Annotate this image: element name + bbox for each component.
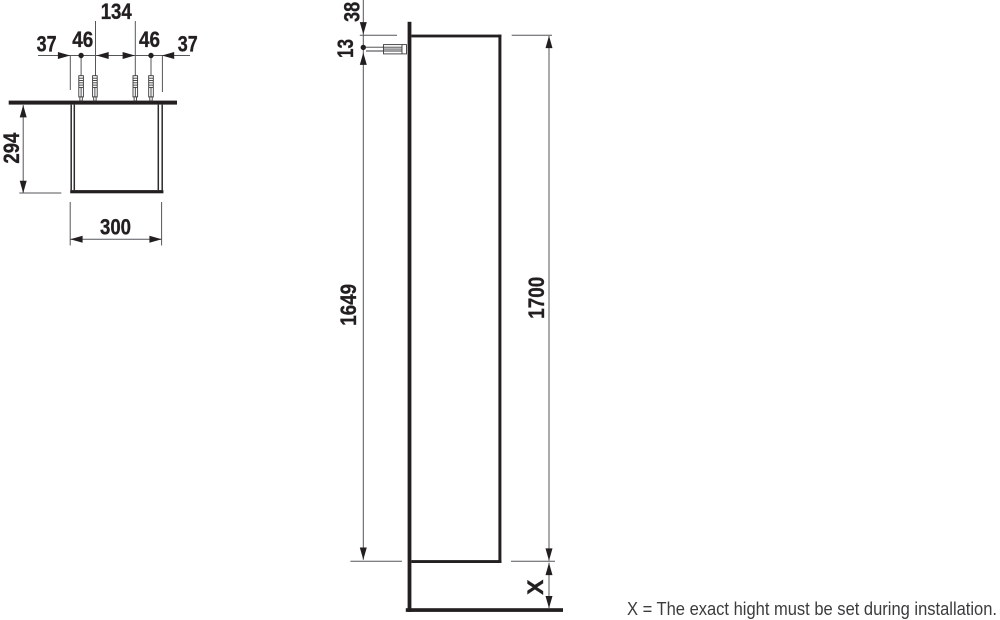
svg-text:300: 300 xyxy=(100,215,131,240)
svg-text:38: 38 xyxy=(340,2,365,22)
svg-text:1700: 1700 xyxy=(524,277,549,319)
svg-text:X = The exact hight must be se: X = The exact hight must be set during i… xyxy=(627,598,997,619)
svg-text:294: 294 xyxy=(0,132,24,163)
svg-text:37: 37 xyxy=(37,32,57,57)
svg-text:13: 13 xyxy=(333,39,358,58)
svg-text:37: 37 xyxy=(178,32,198,57)
svg-text:X: X xyxy=(523,580,548,595)
svg-text:134: 134 xyxy=(101,0,132,24)
svg-text:46: 46 xyxy=(72,27,93,52)
svg-text:1649: 1649 xyxy=(336,284,361,326)
svg-text:46: 46 xyxy=(139,27,160,52)
